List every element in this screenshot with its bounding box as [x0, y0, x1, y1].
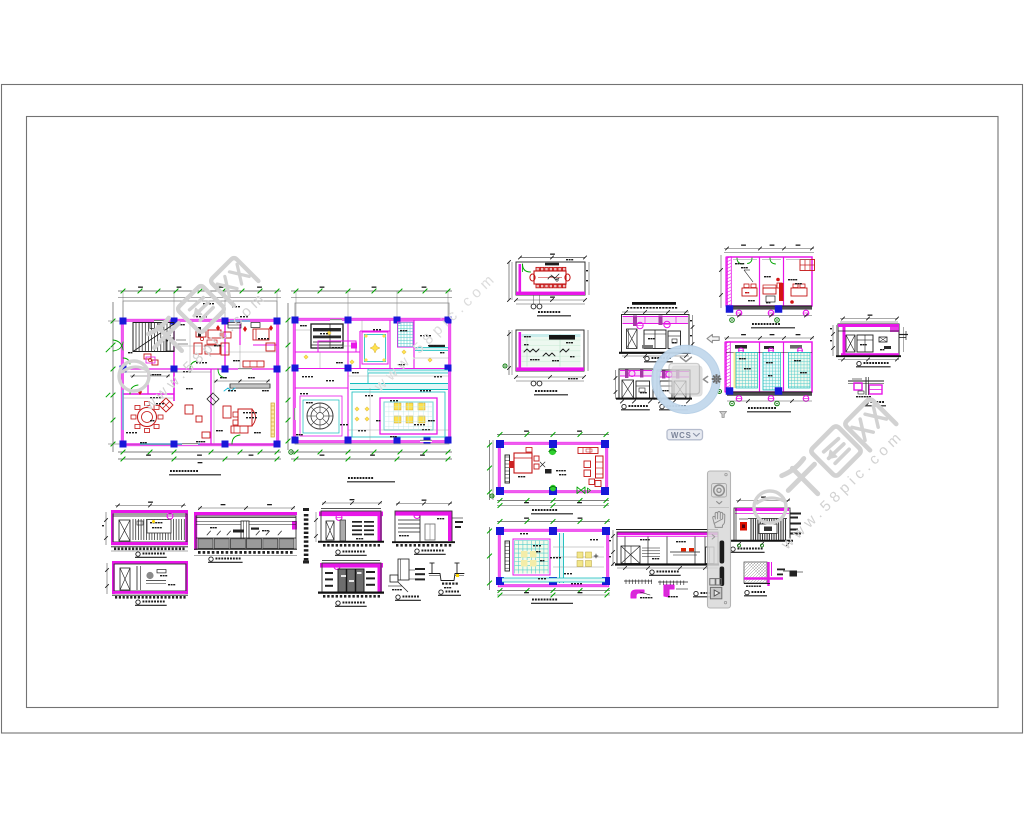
svg-text:WCS: WCS — [671, 431, 692, 440]
